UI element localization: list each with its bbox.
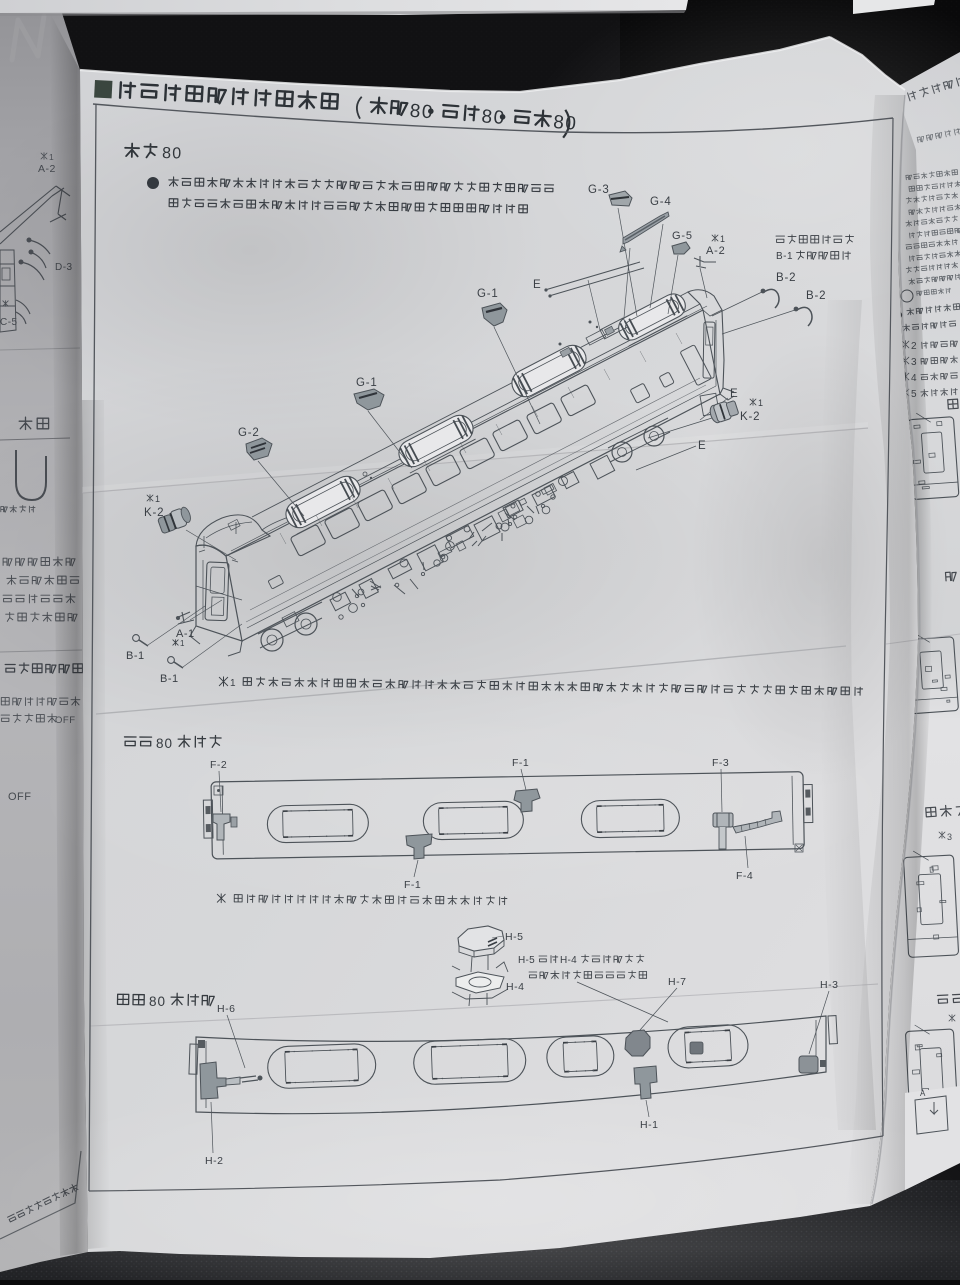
svg-text:G-2: G-2 (238, 427, 260, 439)
svg-text:80: 80 (156, 736, 173, 751)
svg-text:1: 1 (155, 494, 161, 504)
svg-text:G-3: G-3 (588, 184, 610, 196)
svg-text:1: 1 (720, 234, 726, 244)
svg-text:A-1: A-1 (176, 628, 195, 640)
svg-text:H-3: H-3 (820, 979, 838, 991)
svg-text:H-1: H-1 (640, 1119, 658, 1131)
svg-text:K-2: K-2 (740, 411, 760, 423)
svg-text:80: 80 (149, 994, 166, 1009)
svg-text:H-5: H-5 (518, 955, 535, 966)
svg-text:F-1: F-1 (404, 879, 421, 891)
svg-text:1: 1 (758, 398, 764, 408)
svg-text:E: E (730, 388, 738, 400)
svg-text:G-4: G-4 (650, 196, 672, 208)
svg-text:B-1: B-1 (776, 251, 793, 262)
svg-text:1: 1 (230, 678, 236, 689)
svg-text:A-2: A-2 (706, 245, 726, 257)
svg-text:F-2: F-2 (210, 759, 227, 771)
svg-text:1: 1 (180, 639, 185, 648)
svg-text:F-1: F-1 (512, 757, 529, 769)
svg-text:G-1: G-1 (356, 377, 378, 389)
svg-text:B-1: B-1 (160, 673, 179, 685)
svg-text:G-1: G-1 (477, 288, 499, 300)
svg-text:G-5: G-5 (672, 230, 693, 242)
svg-text:B-1: B-1 (126, 650, 145, 662)
svg-text:H-2: H-2 (205, 1155, 223, 1167)
svg-text:F-4: F-4 (736, 870, 753, 882)
svg-text:A: A (920, 1089, 926, 1098)
svg-text:E: E (533, 279, 541, 291)
svg-text:B-2: B-2 (806, 290, 826, 302)
svg-text:H-6: H-6 (217, 1003, 235, 1015)
svg-text:H-5: H-5 (505, 931, 523, 943)
svg-text:3: 3 (947, 832, 953, 842)
svg-text:F-3: F-3 (712, 757, 729, 769)
svg-text:H-4: H-4 (560, 955, 577, 966)
svg-text:H-4: H-4 (506, 981, 524, 993)
svg-text:H-7: H-7 (668, 976, 686, 988)
svg-text:E: E (698, 440, 706, 452)
svg-text:B-2: B-2 (776, 272, 796, 284)
svg-text:80: 80 (162, 145, 183, 163)
